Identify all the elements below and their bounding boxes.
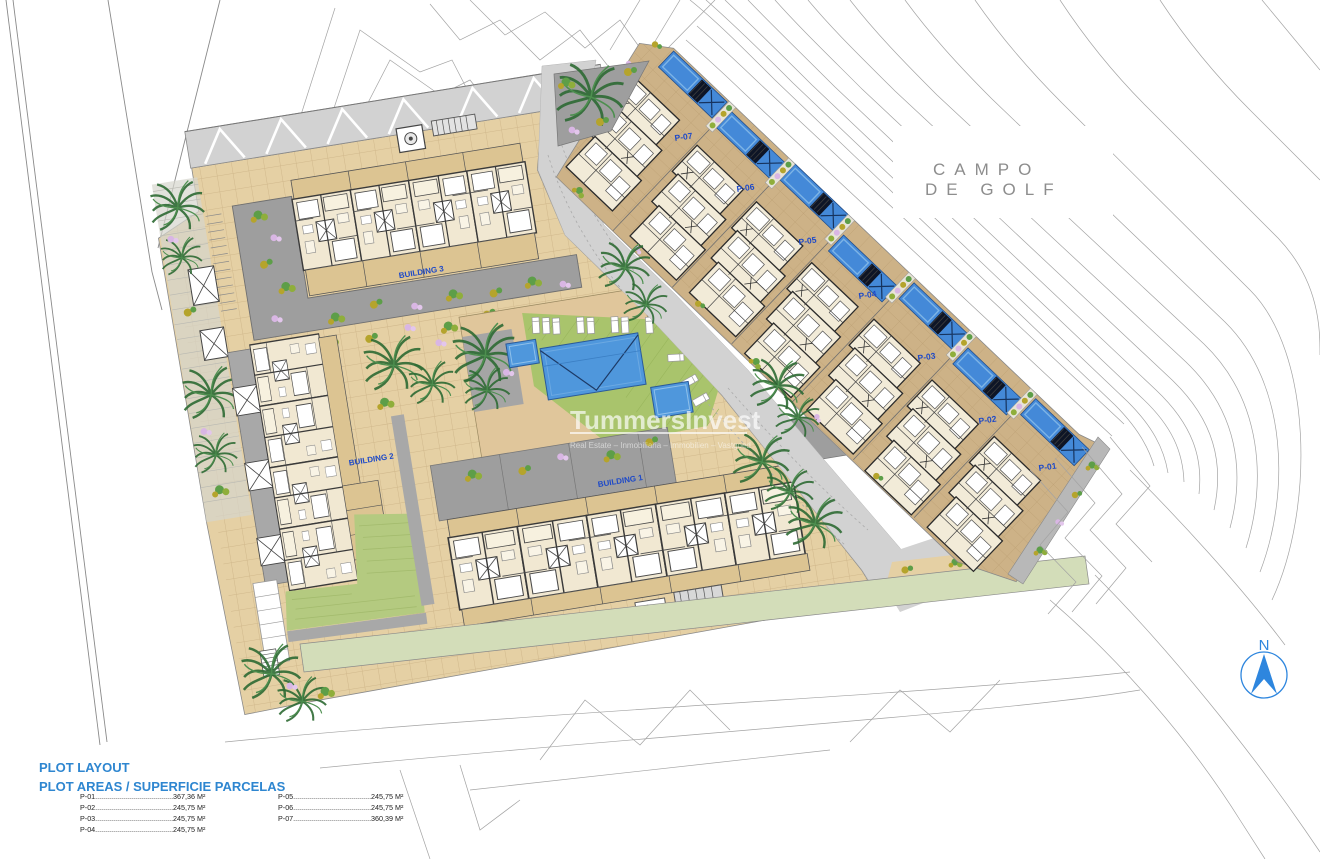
svg-text:P-01..........................: P-01....................................… bbox=[80, 792, 206, 801]
svg-text:P-06..........................: P-06....................................… bbox=[278, 803, 404, 812]
svg-text:N: N bbox=[1259, 637, 1270, 654]
svg-text:P-07..........................: P-07....................................… bbox=[278, 814, 404, 823]
svg-text:TummersInvest: TummersInvest bbox=[570, 405, 761, 435]
svg-text:P-04..........................: P-04....................................… bbox=[80, 825, 206, 834]
svg-text:P-02..........................: P-02....................................… bbox=[80, 803, 206, 812]
svg-text:P-03..........................: P-03....................................… bbox=[80, 814, 206, 823]
svg-text:CAMPO: CAMPO bbox=[933, 160, 1040, 179]
svg-text:DE GOLF: DE GOLF bbox=[925, 180, 1063, 199]
svg-text:Real Estate – Inmobiliaria – I: Real Estate – Inmobiliaria – Immobilien … bbox=[570, 441, 751, 450]
svg-text:PLOT LAYOUT: PLOT LAYOUT bbox=[39, 760, 130, 775]
svg-text:P-05..........................: P-05....................................… bbox=[278, 792, 404, 801]
